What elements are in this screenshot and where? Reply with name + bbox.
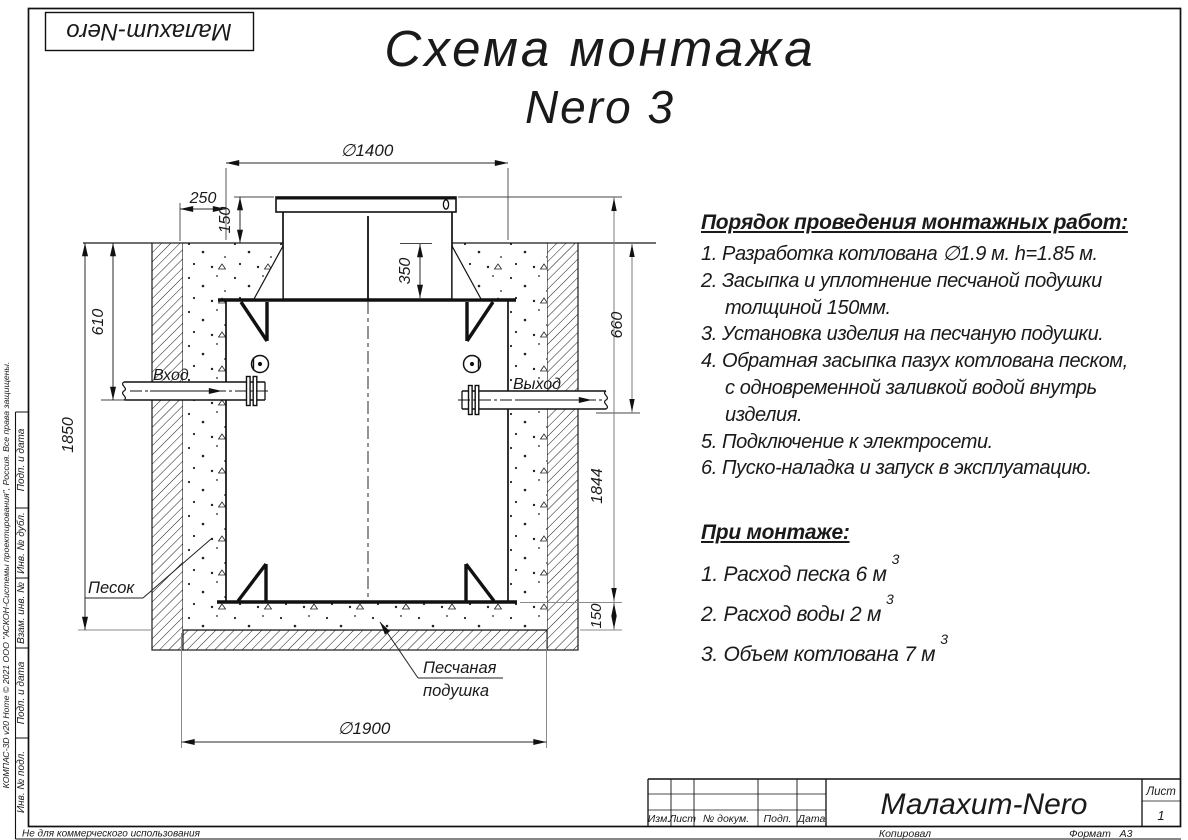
non-commercial-note: Не для коммерческого использования (22, 829, 201, 840)
tb-header-podp: Подп. (764, 813, 792, 825)
montage-item-sup: 3 (886, 591, 894, 607)
ground-right-wall (547, 243, 578, 650)
margin-cell-5: Инв. № подл. (16, 751, 27, 813)
tb-sheet-number: 1 (1157, 808, 1164, 823)
drawing-sheet: { "sheet": { "frame_stamp": "Малахит-Ner… (0, 0, 1188, 840)
dim-body-height: 1844 (589, 468, 606, 504)
montage-heading: При монтаже: (701, 521, 1131, 545)
dim-offset: 250 (189, 190, 217, 207)
tb-header-ndoc: № докум. (703, 813, 749, 825)
procedure-item: 4. Обратная засыпка пазух котлована песк… (701, 348, 1175, 428)
margin-cell-3: Взам. инв. № (16, 582, 27, 644)
margin-cell-4: Подп. и дата (16, 661, 27, 724)
tb-format-value: А3 (1119, 828, 1133, 840)
tb-format-label: Формат (1069, 828, 1111, 840)
outlet-label: Выход (513, 376, 561, 393)
inlet-label: Вход (153, 367, 189, 384)
dim-arrowheads (611, 198, 634, 629)
dim-lid-height: 150 (217, 207, 234, 234)
drawing-title-line1: Схема монтажа (330, 20, 870, 78)
drawing-title: Схема монтажа Nero 3 (330, 20, 870, 136)
procedure-item: 1. Разработка котлована ∅1.9 м. h=1.85 м… (701, 241, 1175, 268)
flange-wedges (241, 302, 493, 341)
dim-cushion-thickness: 150 (588, 603, 605, 629)
ground-left-wall (152, 243, 183, 650)
outlet-port-icon (464, 356, 481, 373)
installation-procedure: Порядок проведения монтажных работ: 1. Р… (701, 211, 1175, 482)
tb-header-izm: Изм. (648, 813, 670, 825)
dim-inlet-depth: 610 (90, 309, 107, 336)
procedure-item: 6. Пуско-наладка и запуск в эксплуатацию… (701, 455, 1175, 482)
procedure-item: 5. Подключение к электросети. (701, 429, 1175, 456)
procedure-item: 3. Установка изделия на песчаную подушки… (701, 321, 1175, 348)
pit-section (152, 243, 578, 650)
montage-item: 2. Расход воды 2 м3 (701, 600, 1131, 625)
bottom-feet (238, 564, 494, 601)
outlet-pipe: Выход (458, 376, 608, 415)
cushion-label-line2: подушка (423, 682, 489, 700)
sand-cushion (183, 602, 547, 630)
sand-label: Песок (88, 579, 135, 597)
tb-header-list: Лист (668, 813, 696, 825)
margin-cell-1: Подп. и дата (16, 428, 27, 491)
montage-item-sup: 3 (940, 631, 948, 647)
drawing-title-line2: Nero 3 (330, 78, 870, 136)
montage-notes: При монтаже: 1. Расход песка 6 м3 2. Рас… (701, 521, 1131, 665)
dim-neck-depth: 350 (397, 258, 414, 285)
dim-top-diameter: ∅1400 (341, 141, 394, 160)
stamp-label: Малахит-Nero (66, 18, 232, 45)
inlet-port-icon (252, 356, 269, 373)
tb-product-name: Малахит-Nero (881, 788, 1088, 821)
copyright-note: КОМПАС-3D v20 Home © 2021 ООО "АСКОН-Сис… (1, 362, 11, 789)
dim-outlet-depth: 660 (609, 312, 626, 339)
montage-item: 1. Расход песка 6 м3 (701, 560, 1131, 585)
procedure-heading: Порядок проведения монтажных работ: (701, 211, 1175, 235)
margin-cell-2: Инв. № дубл. (15, 512, 27, 574)
procedure-item: 2. Засыпка и уплотнение песчаной подушки… (701, 268, 1175, 322)
dim-pit-diameter: ∅1900 (338, 719, 391, 738)
montage-item-text: 2. Расход воды 2 м (701, 603, 881, 626)
montage-item-text: 3. Объем котлована 7 м (701, 643, 935, 666)
ground-bottom (183, 630, 547, 650)
cushion-label-line1: Песчаная (423, 659, 497, 677)
dim-pit-depth: 1850 (60, 417, 77, 453)
montage-item-text: 1. Расход песка 6 м (701, 563, 887, 586)
tb-sheet-label: Лист (1145, 786, 1176, 798)
tb-header-data: Дата (797, 813, 826, 825)
tb-copied: Копировал (879, 828, 931, 840)
montage-item: 3. Объем котлована 7 м3 (701, 640, 1131, 665)
montage-item-sup: 3 (892, 551, 900, 567)
